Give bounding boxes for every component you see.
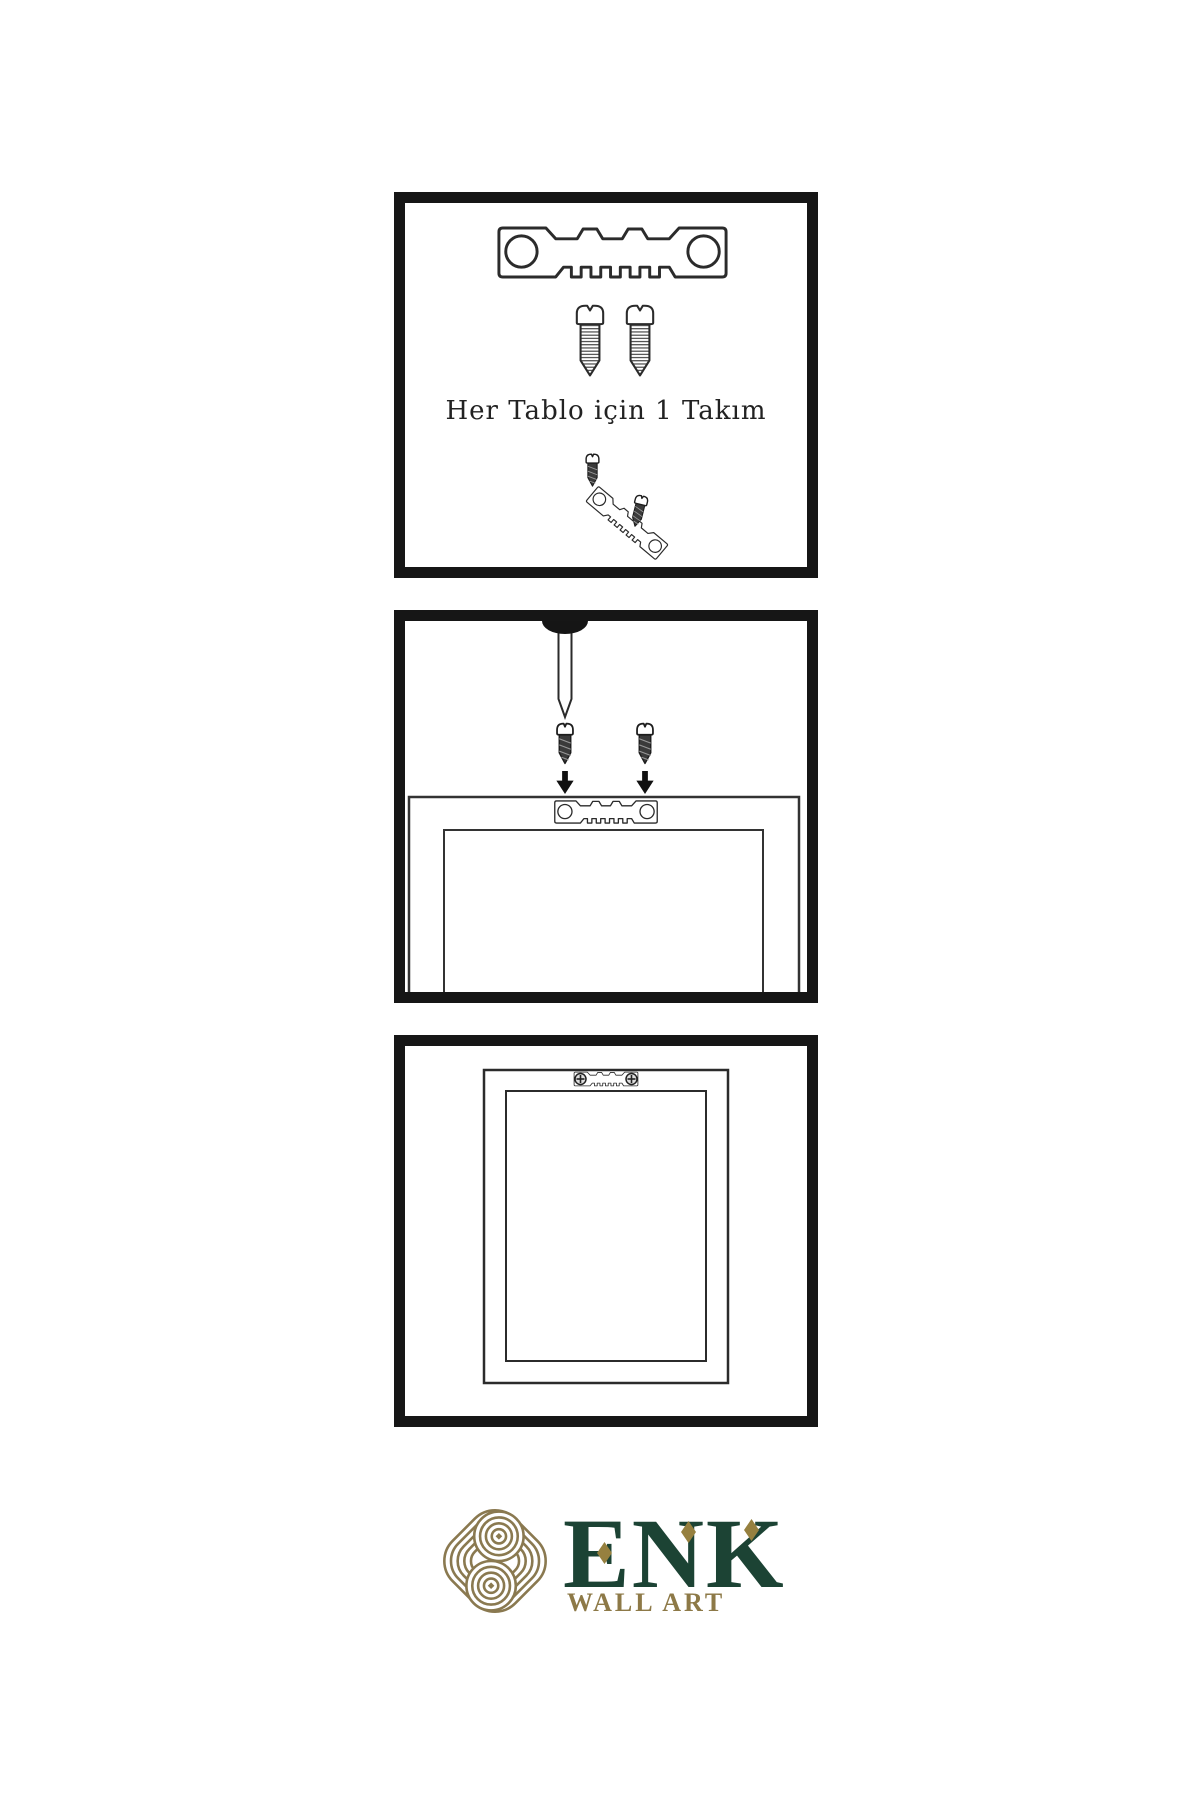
step-3-panel — [394, 1035, 818, 1427]
step-2-illustration — [405, 621, 807, 992]
brand-subtitle: WALL ART — [567, 1590, 725, 1616]
page: { "brand": { "name": "ENK", "subtitle": … — [0, 0, 1200, 1800]
screw-into-hanger-icon — [586, 454, 668, 559]
phillips-screw-icon — [575, 1074, 586, 1085]
down-arrow-icon — [556, 771, 573, 794]
mounting-screw-icon — [637, 724, 653, 764]
down-arrow-icon — [636, 771, 653, 794]
wall-nail-icon — [542, 621, 588, 717]
step-1-panel: Her Tablo için 1 Takım — [394, 192, 818, 578]
step-3-illustration — [405, 1046, 807, 1416]
phillips-screw-icon — [626, 1074, 637, 1085]
step-2-panel — [394, 610, 818, 1003]
sawtooth-hanger-icon — [499, 228, 726, 277]
mounting-screw-icon — [557, 724, 573, 764]
step-1-illustration — [405, 203, 807, 567]
brand-knot-icon — [430, 1496, 560, 1626]
frame-back-inner-edge — [444, 830, 763, 992]
frame-back-inner-edge — [506, 1091, 706, 1361]
mounting-screw-icon — [577, 306, 603, 376]
mounting-screw-icon — [627, 306, 653, 376]
kit-caption: Her Tablo için 1 Takım — [405, 396, 807, 426]
